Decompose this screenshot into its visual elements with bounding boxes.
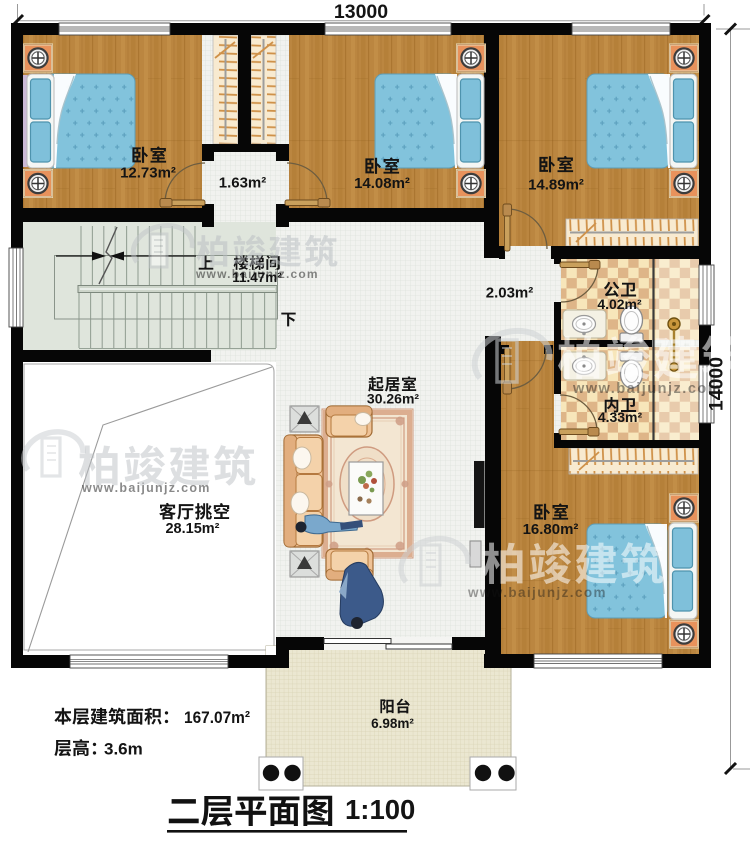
svg-text:13000: 13000 [334,1,388,23]
svg-text:16.80m²: 16.80m² [523,521,579,538]
svg-text:12.73m²: 12.73m² [120,165,176,182]
svg-text:4.33m²: 4.33m² [598,409,643,425]
svg-text:www.baijunjz.com: www.baijunjz.com [572,381,722,397]
svg-text:3.6m: 3.6m [104,740,143,759]
svg-text:1.63m²: 1.63m² [219,175,267,192]
svg-text:14000: 14000 [706,357,728,411]
svg-text:4.02m²: 4.02m² [597,296,642,312]
svg-text:1:100: 1:100 [345,794,415,825]
svg-text:28.15m²: 28.15m² [165,521,219,537]
svg-text:11.47m²: 11.47m² [232,270,282,285]
svg-text:30.26m²: 30.26m² [367,391,419,407]
svg-text:14.08m²: 14.08m² [354,175,410,192]
svg-text:2.03m²: 2.03m² [486,285,534,302]
svg-text:www.baijunjz.com: www.baijunjz.com [467,585,607,600]
svg-text:14.89m²: 14.89m² [528,177,584,194]
svg-text:167.07m²: 167.07m² [184,708,250,727]
svg-text:6.98m²: 6.98m² [371,716,414,731]
